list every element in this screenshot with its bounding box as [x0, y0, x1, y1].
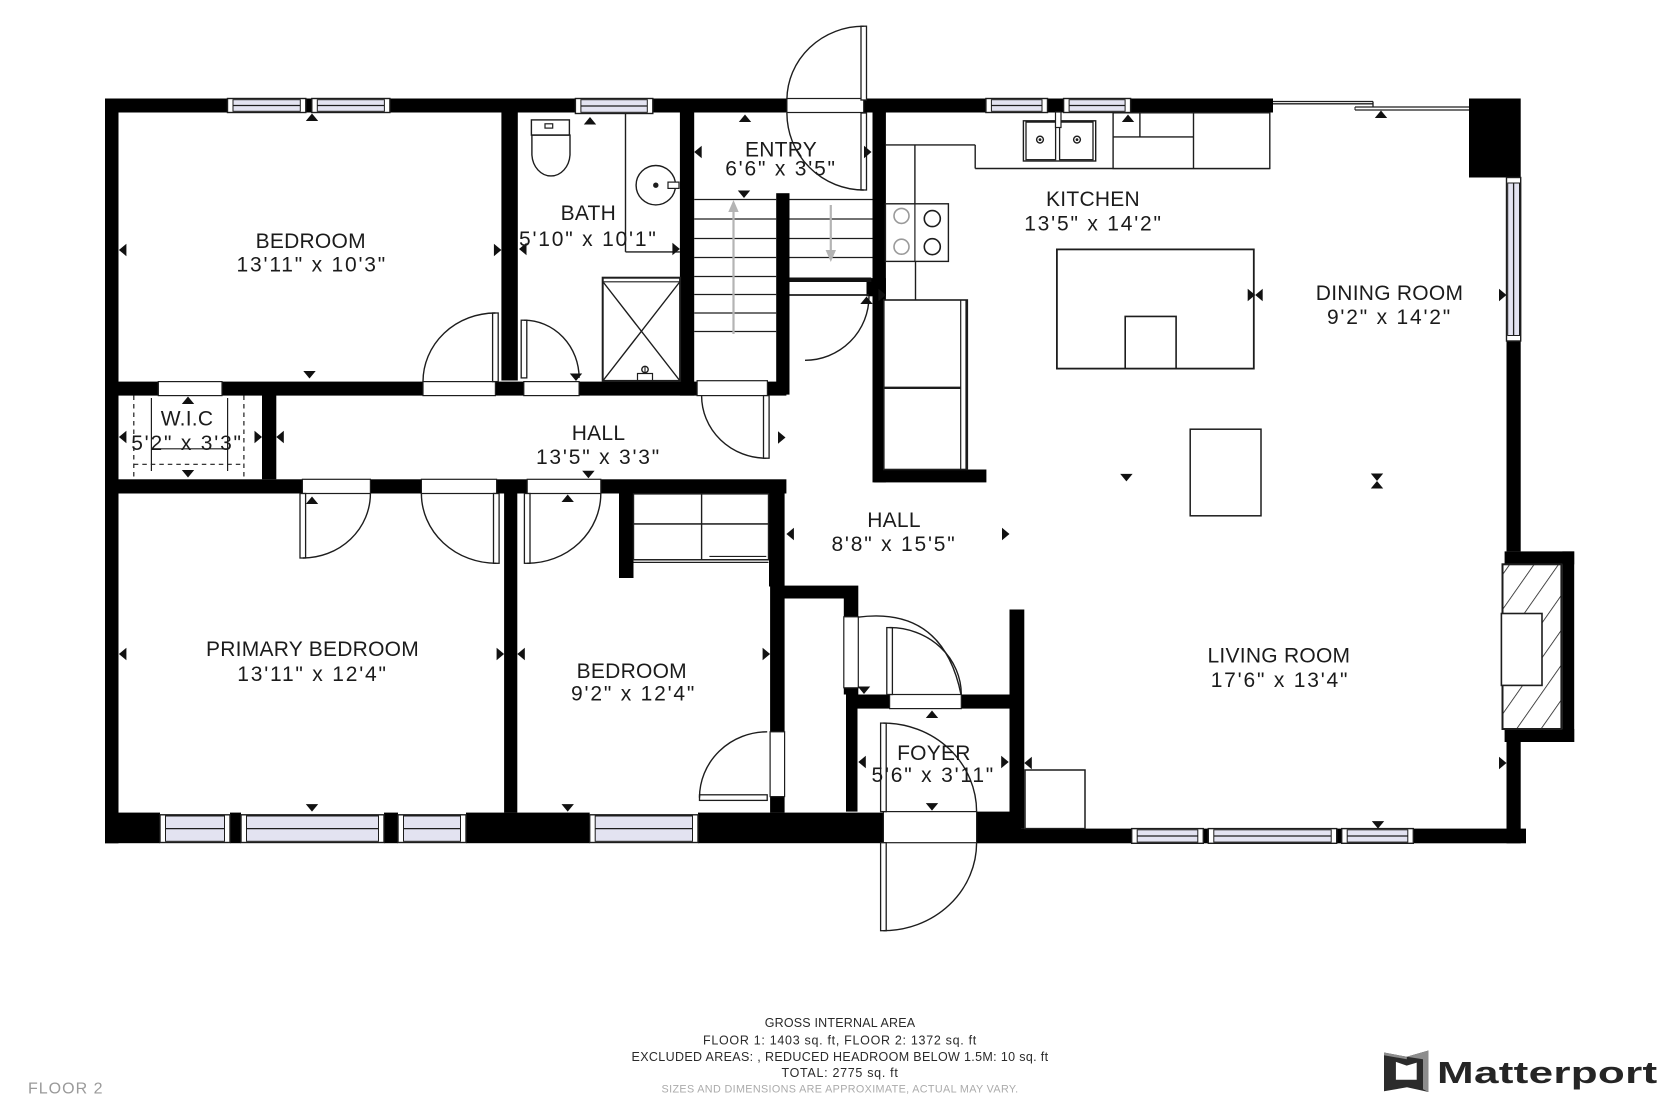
svg-text:6'6" x 3'5": 6'6" x 3'5": [725, 158, 837, 181]
svg-text:13'11" x 10'3": 13'11" x 10'3": [237, 254, 388, 277]
svg-text:EXCLUDED AREAS: , REDUCED HEAD: EXCLUDED AREAS: , REDUCED HEADROOM BELOW…: [632, 1050, 1049, 1064]
svg-text:5'10" x 10'1": 5'10" x 10'1": [519, 228, 658, 251]
svg-text:TOTAL: 2775 sq. ft: TOTAL: 2775 sq. ft: [781, 1066, 898, 1080]
svg-text:5'2" x 3'3": 5'2" x 3'3": [131, 432, 243, 455]
svg-text:BATH: BATH: [561, 202, 616, 225]
svg-text:17'6" x 13'4": 17'6" x 13'4": [1211, 669, 1350, 692]
svg-text:13'5" x 3'3": 13'5" x 3'3": [536, 446, 661, 469]
svg-text:9'2" x 12'4": 9'2" x 12'4": [571, 683, 696, 706]
svg-text:8'8" x 15'5": 8'8" x 15'5": [831, 533, 956, 556]
svg-text:HALL: HALL: [867, 509, 921, 532]
svg-text:KITCHEN: KITCHEN: [1046, 188, 1140, 211]
svg-text:BEDROOM: BEDROOM: [577, 660, 687, 683]
svg-text:W.I.C: W.I.C: [161, 408, 214, 431]
svg-text:LIVING ROOM: LIVING ROOM: [1208, 645, 1351, 668]
svg-text:HALL: HALL: [572, 422, 626, 445]
svg-text:13'5" x 14'2": 13'5" x 14'2": [1024, 213, 1163, 236]
svg-text:DINING ROOM: DINING ROOM: [1316, 282, 1463, 305]
svg-text:SIZES AND DIMENSIONS ARE APPRO: SIZES AND DIMENSIONS ARE APPROXIMATE, AC…: [662, 1084, 1019, 1096]
svg-text:GROSS INTERNAL AREA: GROSS INTERNAL AREA: [765, 1016, 916, 1030]
svg-text:FLOOR 1: 1403 sq. ft, FLOOR 2:: FLOOR 1: 1403 sq. ft, FLOOR 2: 1372 sq. …: [703, 1034, 977, 1048]
svg-text:BEDROOM: BEDROOM: [256, 230, 366, 253]
svg-text:13'11" x 12'4": 13'11" x 12'4": [237, 663, 388, 686]
svg-text:FLOOR 2: FLOOR 2: [28, 1081, 103, 1098]
svg-text:5'6" x 3'11": 5'6" x 3'11": [872, 764, 996, 787]
svg-text:PRIMARY BEDROOM: PRIMARY BEDROOM: [206, 638, 419, 661]
svg-text:9'2" x 14'2": 9'2" x 14'2": [1327, 306, 1452, 329]
svg-text:FOYER: FOYER: [897, 742, 971, 765]
svg-text:Matterport: Matterport: [1437, 1056, 1658, 1090]
